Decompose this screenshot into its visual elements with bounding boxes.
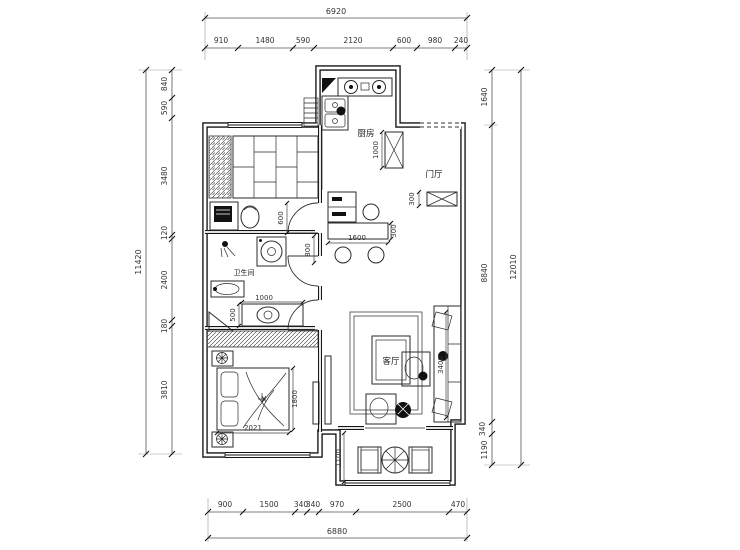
dim-hallway: 800 [304,243,312,256]
dim-right-seg: 1640 [480,87,489,106]
floor-plan-sheet: 6920 910 1480 590 2120 600 980 240 900 1… [0,0,740,550]
toilet [242,304,303,326]
dim-top-seg: 240 [454,36,469,45]
extension-lines [138,12,530,542]
entry-hall: 300 门厅 [408,169,457,206]
wardrobe [209,136,231,198]
dim-top-seg: 910 [214,36,229,45]
dim-right-seg: 1190 [480,440,489,459]
stove [338,78,392,96]
pillow [432,398,452,416]
dim-right-overall: 12010 [509,254,518,279]
dim-bed-width: 2021 [244,424,262,432]
dim-bottom-seg: 1500 [259,500,278,509]
balcony-chair [409,447,432,473]
dim-toilet-width: 1000 [255,294,273,302]
bed [217,368,289,430]
living-room: 3400 客厅 [325,306,461,424]
dim-bottom-overall: 6880 [327,527,347,536]
dim-chain-top: 6920 910 1480 590 2120 600 980 240 [202,7,470,51]
dim-dining-depth: 300 [390,224,398,237]
bathroom-door [288,256,318,286]
kitchen-label: 厨房 [357,128,374,139]
dim-left-seg: 840 [160,77,169,92]
vanity [211,281,244,297]
desk-chair [241,206,259,228]
dim-left-seg: 3810 [160,380,169,399]
shoe-cabinet [427,192,457,206]
dim-bottom-seg: 900 [218,500,233,509]
dim-chain-left: 11420 840 590 3480 120 2400 180 3810 [134,67,175,457]
chaise [366,394,396,424]
dim-bottom-seg: 970 [330,500,345,509]
dim-left-seg: 3480 [160,166,169,185]
dim-left-seg: 590 [160,101,169,116]
dim-bottom-seg: 470 [451,500,466,509]
dim-top-seg: 1480 [255,36,274,45]
pillow [432,312,452,330]
dim-left-overall: 11420 [134,249,143,274]
corner-unit [322,78,336,93]
dim-left-seg: 180 [160,319,169,334]
washing-machine [257,237,286,266]
dim-left-seg: 120 [160,226,169,241]
floor-plan-drawing: 6920 910 1480 590 2120 600 980 240 900 1… [0,0,740,550]
desk [210,202,259,230]
balcony-chair [358,447,381,473]
tall-cabinet [385,132,403,168]
kitchen: 1000 厨房 [322,78,403,168]
dim-top-seg: 600 [397,36,412,45]
dim-left-seg: 2400 [160,270,169,289]
dim-top-seg: 980 [428,36,443,45]
bedroom: 1800 2021 [212,351,319,447]
dim-top-seg: 2120 [343,36,362,45]
entry-label: 门厅 [425,169,443,180]
dim-sofa-wall: 3400 [437,356,445,374]
dim-right-seg: 8840 [480,263,489,282]
balcony-table [382,447,408,473]
shower-head-icon [221,241,235,257]
dim-entry-cabinet: 300 [408,192,416,205]
dim-bottom-seg: 2500 [392,500,411,509]
dim-chain-right: 1640 8840 340 1190 12010 [478,67,524,468]
dim-balcony-depth: 1100 [335,449,343,467]
dim-dining-width: 1600 [348,234,366,242]
sink [322,96,348,130]
living-label: 客厅 [382,356,400,367]
dim-bed-length: 1800 [291,390,299,408]
bookshelf [233,136,318,198]
dim-top-overall: 6920 [326,7,346,16]
dim-kitchen-cabinet: 1000 [372,141,380,159]
closet [207,331,318,347]
plant [395,402,411,418]
dim-top-seg: 590 [296,36,311,45]
balcony: 1100 [335,433,432,482]
living-tv-cabinet [325,356,331,424]
dim-vanity-depth: 500 [229,308,237,321]
study-door [288,203,318,233]
dim-study-door: 600 [277,211,285,224]
bathroom: 1000 500 卫生间 [209,237,303,331]
nightstand [212,351,233,366]
fridge [328,192,356,222]
study-room: 600 [209,136,318,233]
dim-bottom-seg: 340 [306,500,321,509]
dim-right-seg: 340 [478,422,487,437]
bathroom-label: 卫生间 [234,268,255,277]
dim-chain-bottom: 900 1500 340 340 970 2500 470 6880 [205,500,470,541]
